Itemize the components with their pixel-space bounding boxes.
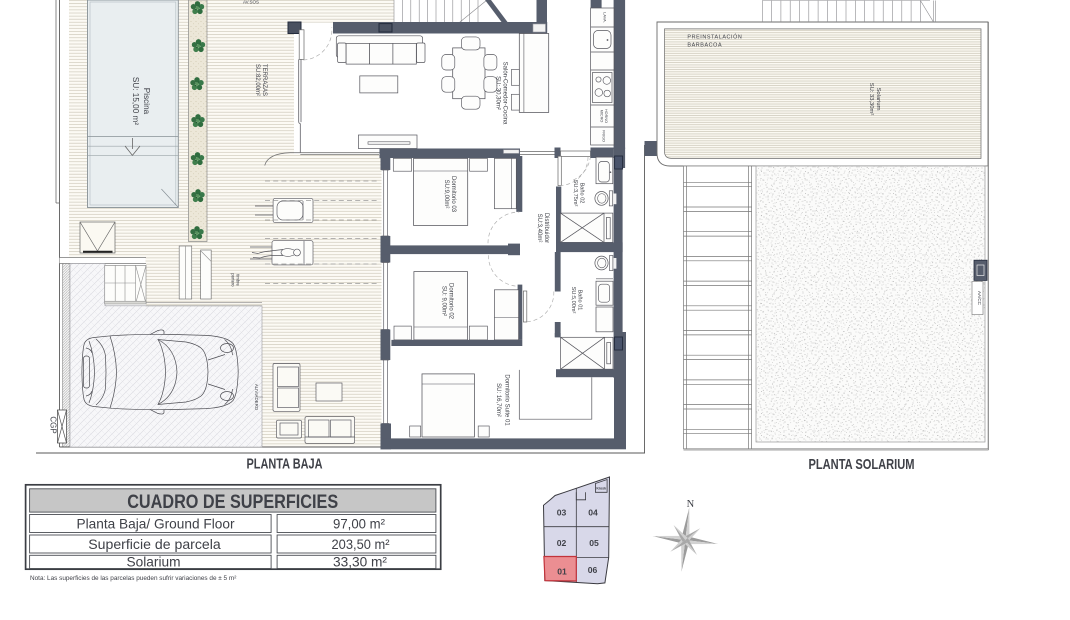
svg-text:03: 03 xyxy=(557,508,567,518)
svg-text:Nota: Las superficies de las p: Nota: Las superficies de las parcelas pu… xyxy=(30,575,236,582)
svg-text:Salón-Comedor-Cocina: Salón-Comedor-Cocina xyxy=(502,62,508,125)
svg-text:MICRO: MICRO xyxy=(600,110,604,123)
svg-text:SU:5,00m²: SU:5,00m² xyxy=(570,287,576,314)
svg-text:SU: 30,30m²: SU: 30,30m² xyxy=(495,76,501,110)
svg-text:CUADRO DE SUPERFICIES: CUADRO DE SUPERFICIES xyxy=(127,491,338,513)
svg-text:06: 06 xyxy=(588,565,598,575)
svg-text:203,50 m²: 203,50 m² xyxy=(332,537,390,552)
svg-text:HORNO: HORNO xyxy=(604,109,608,123)
svg-text:02: 02 xyxy=(557,538,567,548)
svg-text:CGP: CGP xyxy=(49,416,58,433)
svg-text:AA/CC: AA/CC xyxy=(977,291,982,306)
svg-text:Solarium: Solarium xyxy=(875,88,881,111)
svg-text:SU: 9,00m²: SU: 9,00m² xyxy=(441,286,447,316)
svg-text:Baño 02: Baño 02 xyxy=(579,183,585,204)
svg-text:Distribuidor: Distribuidor xyxy=(543,213,549,243)
svg-text:Superficie de parcela: Superficie de parcela xyxy=(88,537,221,552)
svg-text:SU:82,00m²: SU:82,00m² xyxy=(254,64,260,96)
svg-text:PLANTA SOLARIUM: PLANTA SOLARIUM xyxy=(809,456,915,473)
svg-text:Planta Baja/ Ground Floor: Planta Baja/ Ground Floor xyxy=(77,516,235,531)
svg-text:SU: 16,70m²: SU: 16,70m² xyxy=(495,383,501,417)
svg-text:SU:3,40m²: SU:3,40m² xyxy=(536,214,542,243)
svg-text:N: N xyxy=(687,499,695,510)
svg-text:PLANTA BAJA: PLANTA BAJA xyxy=(247,456,323,473)
svg-text:Dormitorio 02: Dormitorio 02 xyxy=(448,283,454,320)
svg-text:PREINSTALACIÓN: PREINSTALACIÓN xyxy=(687,34,742,41)
svg-text:FRIGO: FRIGO xyxy=(602,130,606,142)
svg-text:TERRAZAS: TERRAZAS xyxy=(261,64,267,96)
svg-text:SU:9,00m²: SU:9,00m² xyxy=(443,180,449,209)
svg-text:33,30 m²: 33,30 m² xyxy=(333,554,387,569)
svg-text:BARBACOA: BARBACOA xyxy=(687,42,722,48)
svg-text:Baño 01: Baño 01 xyxy=(577,290,583,311)
svg-text:AV.SOS: AV.SOS xyxy=(243,0,259,5)
svg-text:SU:3,75m²: SU:3,75m² xyxy=(572,180,578,207)
svg-text:portero: portero xyxy=(231,273,236,287)
svg-text:04: 04 xyxy=(588,508,598,518)
svg-text:01: 01 xyxy=(557,567,567,577)
svg-text:05: 05 xyxy=(589,538,599,548)
svg-text:Dormitorio Suite 01: Dormitorio Suite 01 xyxy=(504,374,510,426)
svg-text:Kiosk: Kiosk xyxy=(596,486,606,490)
svg-text:LAVA.: LAVA. xyxy=(603,12,608,23)
svg-text:SU: 33,30m²: SU: 33,30m² xyxy=(868,83,874,116)
svg-text:Piscina: Piscina xyxy=(142,88,151,115)
svg-text:Dormitorio 03: Dormitorio 03 xyxy=(450,176,456,213)
svg-text:97,00 m²: 97,00 m² xyxy=(333,516,385,531)
svg-text:SU: 15,00 m²: SU: 15,00 m² xyxy=(131,77,140,126)
svg-text:Solarium: Solarium xyxy=(127,554,181,569)
